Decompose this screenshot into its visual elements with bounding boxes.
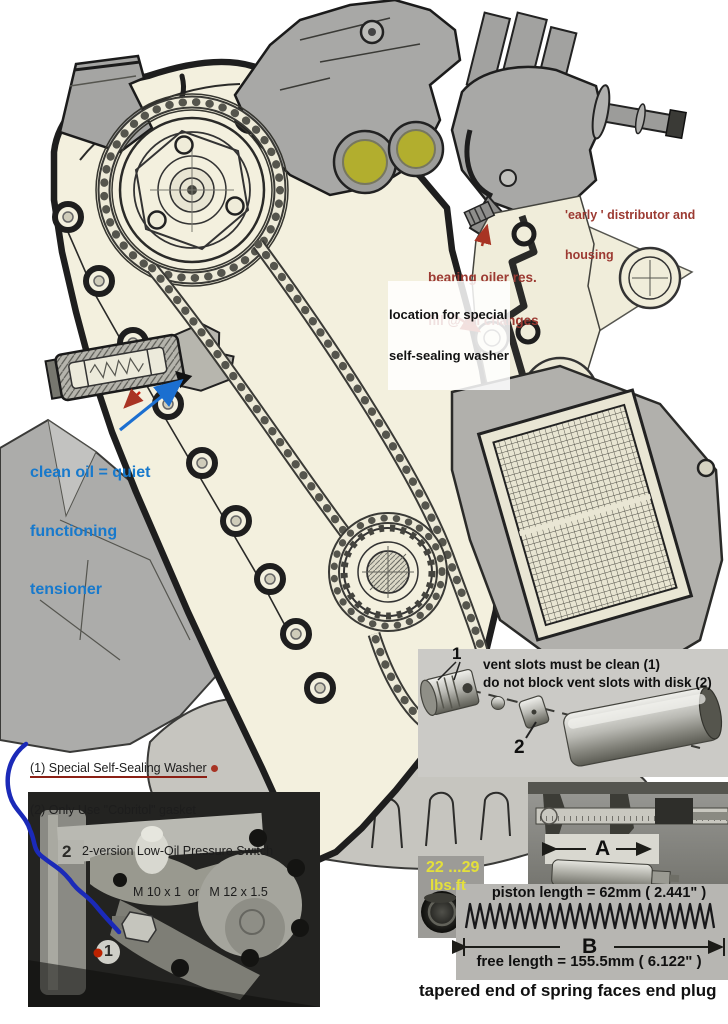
early-distributor-label: 'early ' distributor and housing bbox=[565, 183, 695, 288]
vent-note-line1: vent slots must be clean (1) bbox=[483, 658, 660, 672]
intermediate-sprocket bbox=[334, 518, 442, 626]
note-line-2: (2) Only Use "Cobritol" gasket bbox=[30, 804, 273, 817]
free-length-text: free length = 155.5mm ( 6.122" ) bbox=[460, 954, 718, 970]
note-line-4: M 10 x 1 or M 12 x 1.5 bbox=[133, 886, 273, 899]
thermostat-neck bbox=[60, 56, 152, 152]
washer-location-label: location for special self-sealing washer bbox=[388, 281, 510, 390]
piston-length-text: piston length = 62mm ( 2.441" ) bbox=[470, 886, 728, 901]
torque-value: 22 ...29 bbox=[426, 860, 479, 877]
photo-label-1: 1 bbox=[104, 944, 113, 961]
dim-label-a: A bbox=[590, 838, 615, 860]
vent-label-1: 1 bbox=[452, 645, 461, 663]
torque-units: lbs.ft bbox=[430, 878, 466, 894]
pressure-switch-notes: (1) Special Self-Sealing Washer (2) Only… bbox=[30, 736, 273, 926]
spring-caption: tapered end of spring faces end plug bbox=[419, 982, 717, 1000]
vent-label-2: 2 bbox=[514, 738, 525, 758]
note-line-1: (1) Special Self-Sealing Washer bbox=[30, 761, 207, 778]
caliper-photo bbox=[528, 782, 728, 894]
distributor-shaft bbox=[589, 84, 688, 153]
red-dot bbox=[211, 765, 218, 772]
photo-label-2: 2 bbox=[62, 843, 71, 861]
vent-note-line2: do not block vent slots with disk (2) bbox=[483, 676, 712, 690]
tensioner-note-label: clean oil = quiet functioning tensioner bbox=[30, 424, 150, 639]
red-dot-marker bbox=[94, 949, 103, 958]
note-line-3: 2-version Low-Oil Pressure Switch bbox=[82, 845, 273, 858]
annotated-engine-diagram-page: 'early ' distributor and housing bearing… bbox=[0, 0, 728, 1024]
